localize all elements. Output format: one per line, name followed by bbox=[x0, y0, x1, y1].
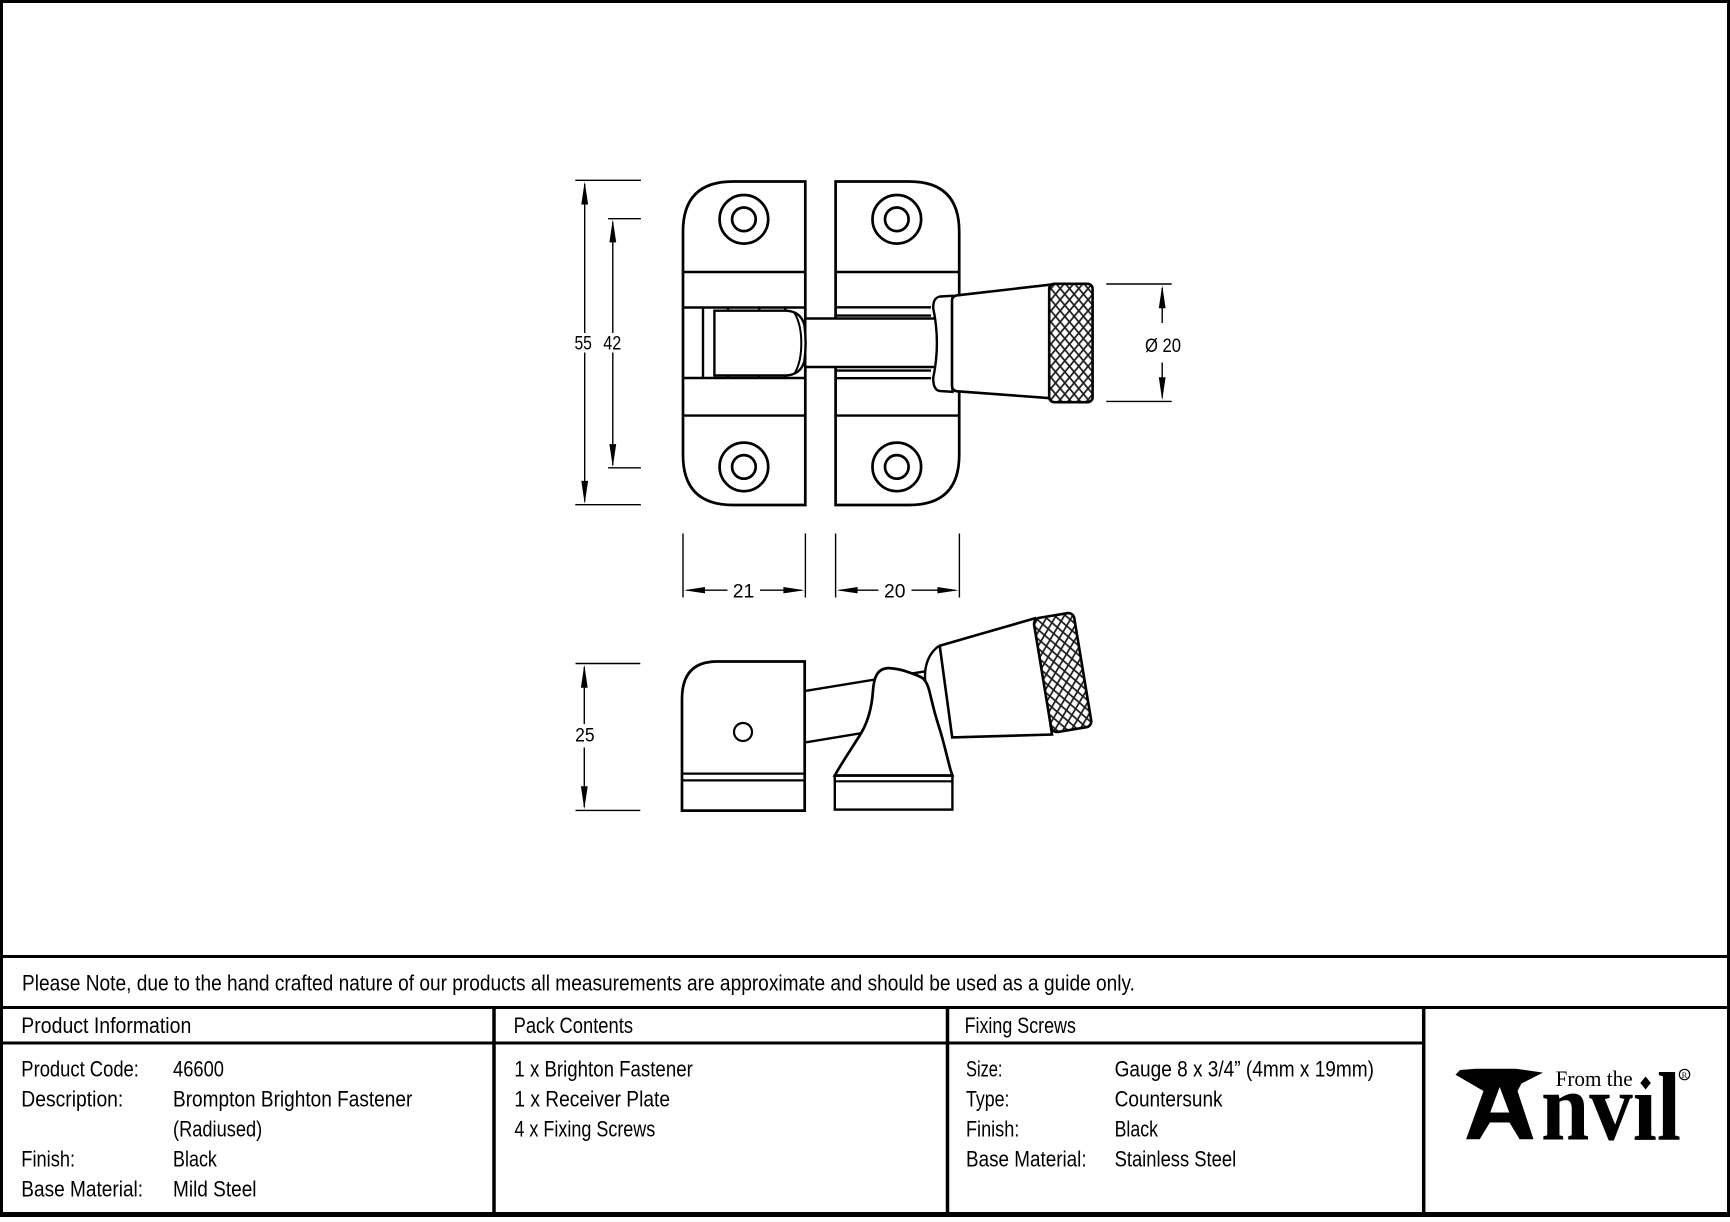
svg-text:(Radiused): (Radiused) bbox=[173, 1117, 262, 1142]
svg-text:25: 25 bbox=[575, 725, 595, 747]
svg-text:Mild Steel: Mild Steel bbox=[173, 1176, 257, 1201]
svg-text:1 x Receiver Plate: 1 x Receiver Plate bbox=[514, 1087, 670, 1112]
svg-text:Gauge 8 x 3/4” (4mm x 19mm): Gauge 8 x 3/4” (4mm x 19mm) bbox=[1115, 1056, 1374, 1081]
svg-text:20: 20 bbox=[884, 581, 906, 603]
svg-text:42: 42 bbox=[603, 332, 621, 354]
svg-text:Size:: Size: bbox=[966, 1056, 1003, 1081]
svg-text:Countersunk: Countersunk bbox=[1115, 1087, 1224, 1112]
svg-text:Fixing Screws: Fixing Screws bbox=[965, 1013, 1076, 1038]
svg-text:Type:: Type: bbox=[966, 1087, 1010, 1112]
svg-text:Please Note, due to the hand c: Please Note, due to the hand crafted nat… bbox=[22, 971, 1135, 996]
svg-text:Pack Contents: Pack Contents bbox=[514, 1013, 633, 1038]
svg-text:Base Material:: Base Material: bbox=[21, 1176, 143, 1201]
svg-text:Stainless Steel: Stainless Steel bbox=[1115, 1146, 1237, 1171]
svg-text:21: 21 bbox=[733, 581, 755, 603]
svg-text:Black: Black bbox=[173, 1146, 218, 1171]
svg-text:Base Material:: Base Material: bbox=[966, 1146, 1087, 1171]
svg-text:46600: 46600 bbox=[173, 1057, 224, 1082]
svg-text:Product Information: Product Information bbox=[21, 1013, 191, 1038]
svg-text:Black: Black bbox=[1115, 1116, 1159, 1141]
svg-text:R: R bbox=[1682, 1070, 1688, 1080]
svg-text:Brompton Brighton Fastener: Brompton Brighton Fastener bbox=[173, 1087, 412, 1112]
svg-text:4 x Fixing Screws: 4 x Fixing Screws bbox=[514, 1116, 655, 1141]
svg-text:Ø 20: Ø 20 bbox=[1145, 335, 1181, 357]
svg-text:Finish:: Finish: bbox=[21, 1146, 75, 1171]
svg-text:Description:: Description: bbox=[21, 1087, 123, 1112]
svg-text:From the: From the bbox=[1556, 1066, 1633, 1091]
svg-text:1 x Brighton Fastener: 1 x Brighton Fastener bbox=[514, 1057, 692, 1082]
svg-text:Finish:: Finish: bbox=[966, 1116, 1019, 1141]
svg-text:55: 55 bbox=[574, 332, 592, 354]
svg-text:Product Code:: Product Code: bbox=[21, 1057, 139, 1082]
